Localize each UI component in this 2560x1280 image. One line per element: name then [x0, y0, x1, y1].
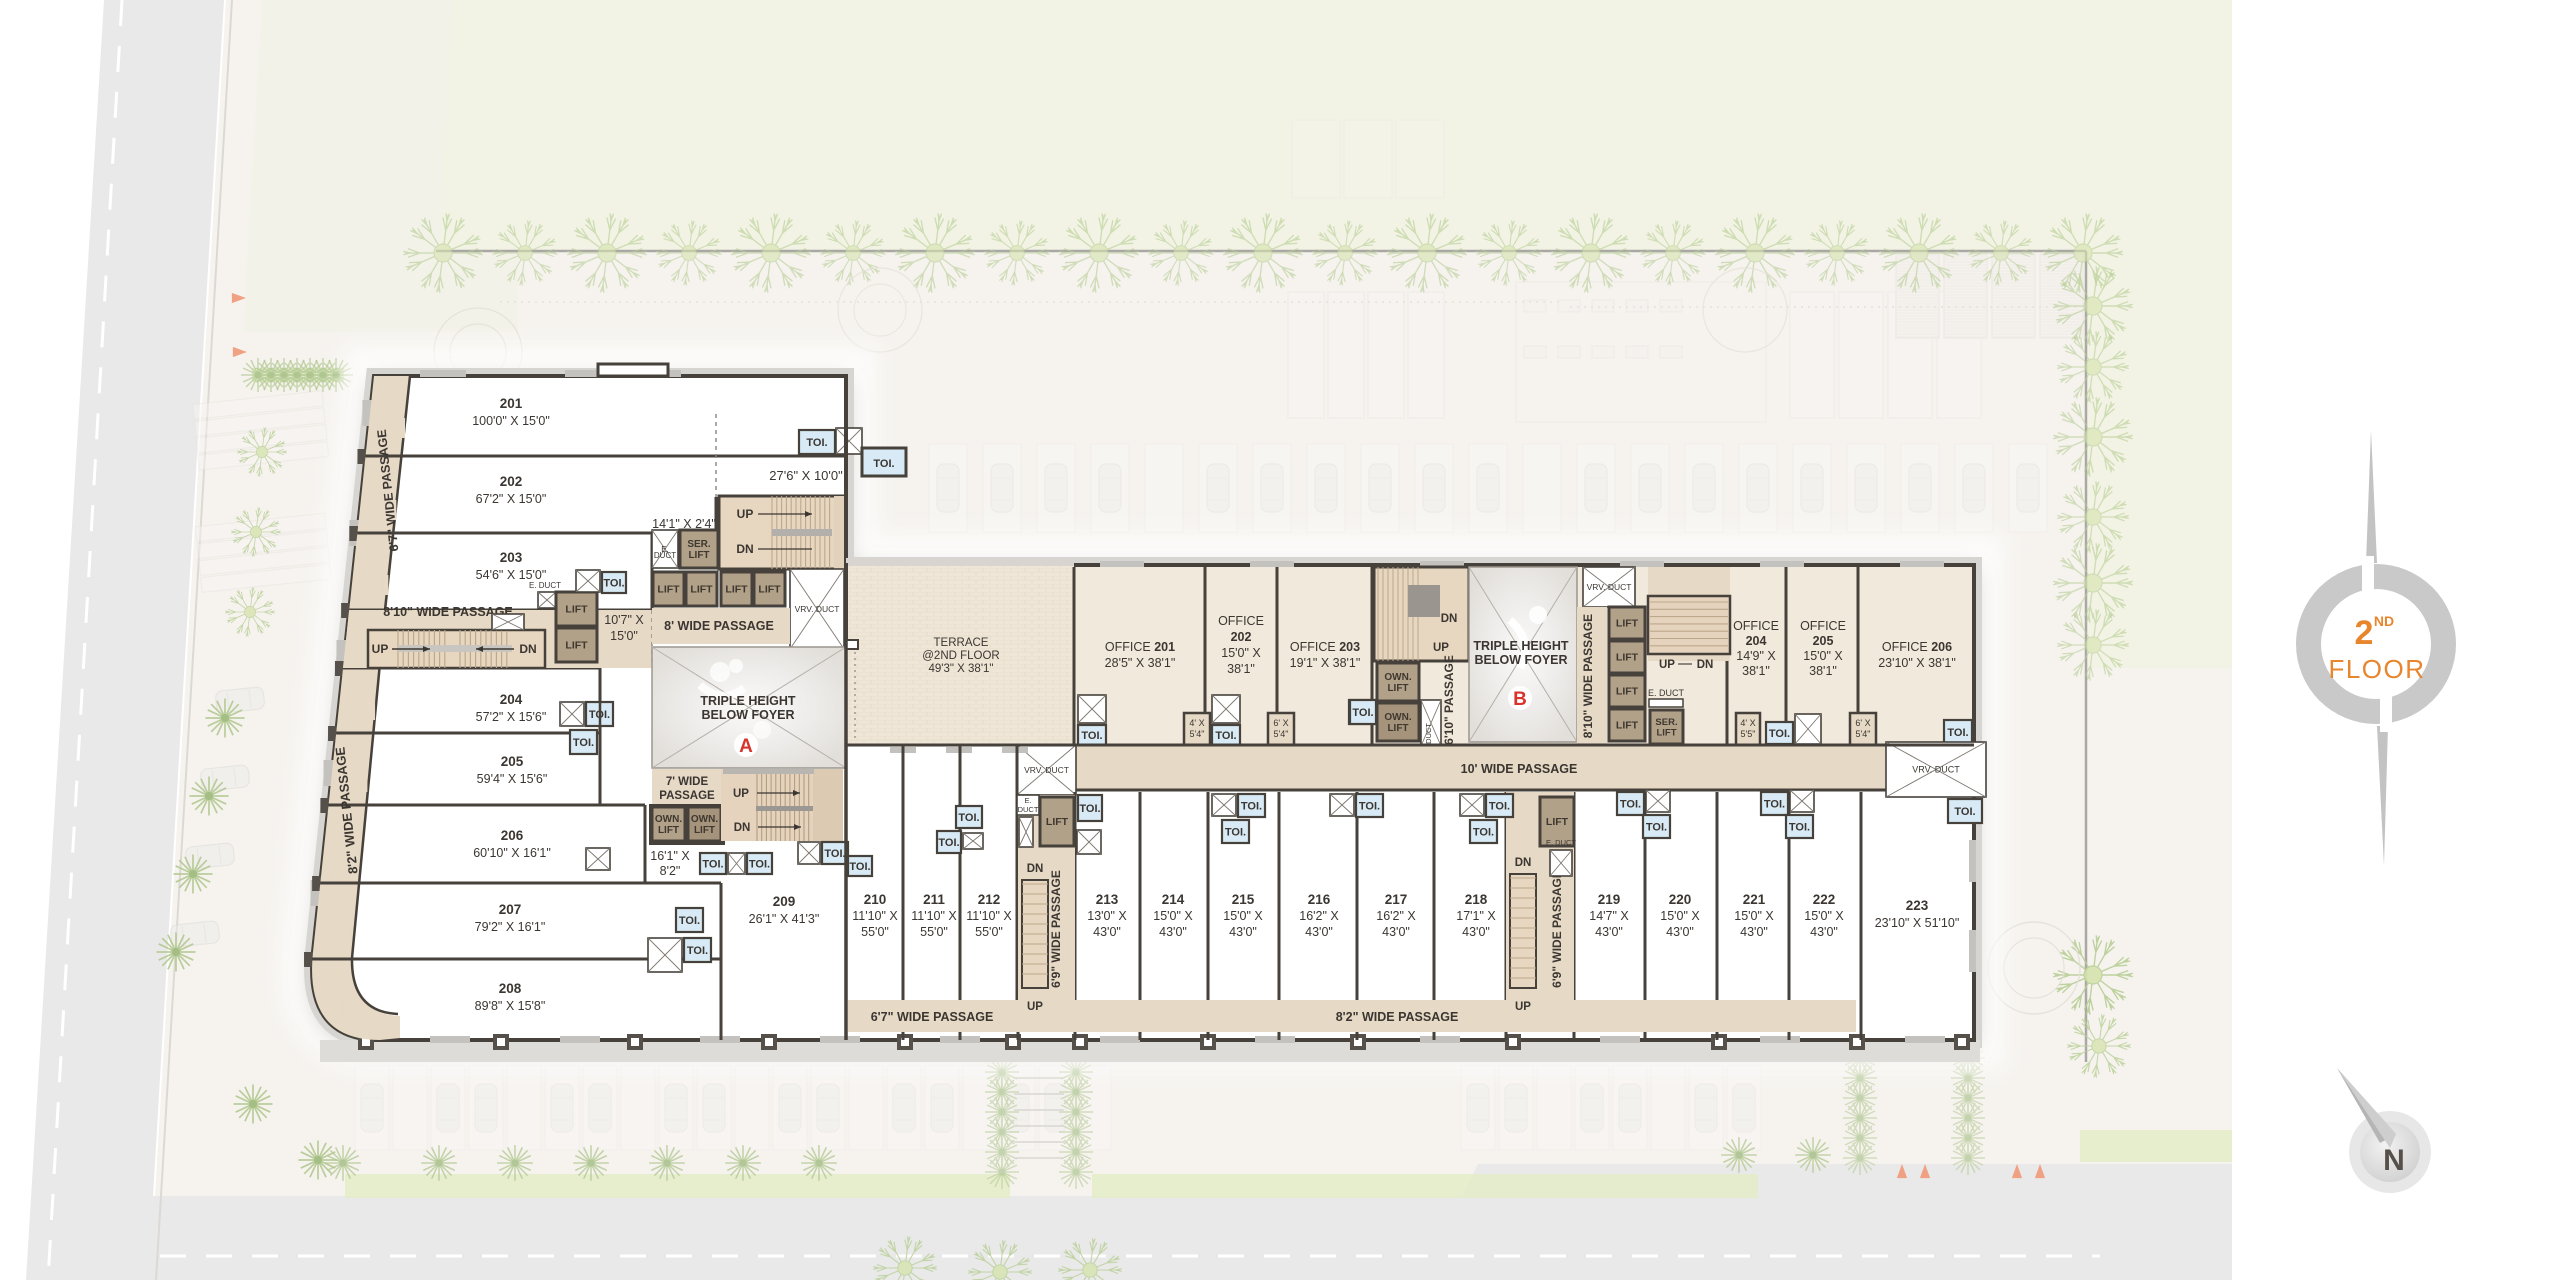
svg-text:221: 221	[1743, 892, 1766, 907]
svg-text:218: 218	[1465, 892, 1488, 907]
svg-text:OFFICE: OFFICE	[1800, 619, 1846, 633]
svg-text:SER.: SER.	[687, 539, 711, 550]
svg-text:55'0": 55'0"	[920, 925, 948, 939]
svg-text:14'7" X: 14'7" X	[1589, 909, 1629, 923]
svg-text:TOI.: TOI.	[1646, 821, 1667, 833]
svg-text:DUCT: DUCT	[654, 551, 676, 560]
svg-text:43'0": 43'0"	[1093, 925, 1121, 939]
svg-text:213: 213	[1096, 892, 1119, 907]
svg-text:E. DUCT: E. DUCT	[1648, 688, 1685, 698]
svg-text:100'0" X 15'0": 100'0" X 15'0"	[472, 414, 550, 428]
svg-text:LIFT: LIFT	[1387, 723, 1408, 734]
svg-text:220: 220	[1669, 892, 1692, 907]
svg-text:79'2" X 16'1": 79'2" X 16'1"	[475, 920, 546, 934]
svg-text:BELOW FOYER: BELOW FOYER	[1474, 653, 1567, 667]
svg-text:E.: E.	[1024, 796, 1031, 805]
svg-text:TOI.: TOI.	[849, 861, 870, 873]
svg-text:BELOW FOYER: BELOW FOYER	[701, 708, 794, 722]
svg-text:6'9" WIDE PASSAGE: 6'9" WIDE PASSAGE	[1049, 870, 1063, 988]
svg-text:TOI.: TOI.	[687, 945, 708, 957]
svg-text:210: 210	[864, 892, 887, 907]
svg-text:15'0": 15'0"	[610, 629, 638, 643]
svg-text:DN: DN	[519, 642, 536, 656]
svg-text:43'0": 43'0"	[1305, 925, 1333, 939]
svg-text:49'3" X 38'1": 49'3" X 38'1"	[929, 663, 994, 675]
svg-text:OFFICE 203: OFFICE 203	[1290, 640, 1360, 654]
svg-text:8'2": 8'2"	[660, 864, 681, 878]
svg-text:55'0": 55'0"	[861, 925, 889, 939]
svg-text:26'1" X 41'3": 26'1" X 41'3"	[749, 912, 820, 926]
svg-text:TOI.: TOI.	[749, 858, 770, 870]
svg-text:TOI.: TOI.	[1359, 800, 1380, 812]
svg-text:TOI.: TOI.	[958, 812, 979, 824]
svg-text:DN: DN	[1697, 659, 1714, 671]
svg-text:LIFT: LIFT	[690, 584, 713, 596]
svg-text:11'10" X: 11'10" X	[852, 909, 898, 923]
svg-text:2: 2	[2355, 614, 2374, 652]
svg-text:27'6" X 10'0": 27'6" X 10'0"	[769, 468, 843, 483]
svg-text:TOI.: TOI.	[1954, 806, 1975, 818]
svg-text:222: 222	[1813, 892, 1836, 907]
svg-text:TOI.: TOI.	[573, 737, 594, 749]
svg-text:TOI.: TOI.	[806, 437, 827, 449]
svg-text:LIFT: LIFT	[1387, 683, 1408, 694]
svg-text:TOI.: TOI.	[1620, 798, 1641, 810]
svg-text:B: B	[1513, 689, 1527, 710]
svg-text:204: 204	[1746, 634, 1767, 648]
svg-text:UP: UP	[733, 788, 749, 800]
svg-text:15'0" X: 15'0" X	[1153, 909, 1193, 923]
svg-text:ND: ND	[2374, 613, 2394, 629]
svg-text:TRIPLE HEIGHT: TRIPLE HEIGHT	[700, 694, 796, 708]
svg-text:43'0": 43'0"	[1462, 925, 1490, 939]
svg-text:215: 215	[1232, 892, 1255, 907]
svg-text:PASSAGE: PASSAGE	[659, 790, 715, 802]
svg-text:15'0" X: 15'0" X	[1221, 646, 1261, 660]
svg-text:UP: UP	[1659, 659, 1675, 671]
svg-text:15'0" X: 15'0" X	[1660, 909, 1700, 923]
svg-text:11'10" X: 11'10" X	[966, 909, 1012, 923]
svg-text:13'0" X: 13'0" X	[1087, 909, 1127, 923]
svg-text:TOI.: TOI.	[679, 915, 700, 927]
svg-text:205: 205	[1813, 634, 1834, 648]
svg-text:DN: DN	[734, 822, 751, 834]
svg-text:208: 208	[499, 981, 522, 996]
svg-text:43'0": 43'0"	[1810, 925, 1838, 939]
svg-text:UP: UP	[737, 507, 754, 521]
svg-text:TRIPLE HEIGHT: TRIPLE HEIGHT	[1473, 639, 1569, 653]
svg-text:LIFT: LIFT	[1046, 816, 1069, 828]
svg-text:DN: DN	[1027, 863, 1044, 875]
svg-text:6'9" WIDE PASSAGE: 6'9" WIDE PASSAGE	[1550, 870, 1564, 988]
svg-text:28'5" X 38'1": 28'5" X 38'1"	[1105, 656, 1176, 670]
svg-text:TOI.: TOI.	[1081, 730, 1102, 742]
svg-text:54'6" X 15'0": 54'6" X 15'0"	[476, 568, 547, 582]
svg-text:DN: DN	[1441, 613, 1458, 625]
svg-text:206: 206	[501, 828, 524, 843]
svg-text:11'10" X: 11'10" X	[911, 909, 957, 923]
svg-text:LIFT: LIFT	[688, 550, 709, 561]
svg-text:38'1": 38'1"	[1227, 662, 1255, 676]
svg-text:15'0" X: 15'0" X	[1804, 909, 1844, 923]
svg-text:214: 214	[1162, 892, 1185, 907]
svg-text:TOI.: TOI.	[1947, 727, 1968, 739]
svg-text:43'0": 43'0"	[1666, 925, 1694, 939]
svg-text:TOI.: TOI.	[1241, 800, 1262, 812]
svg-text:OWN.: OWN.	[655, 814, 682, 825]
svg-text:TOI.: TOI.	[1769, 728, 1790, 740]
svg-text:10'7" X: 10'7" X	[604, 613, 644, 627]
svg-text:LIFT: LIFT	[694, 825, 715, 836]
svg-text:UP: UP	[1515, 1001, 1531, 1013]
svg-text:43'0": 43'0"	[1159, 925, 1187, 939]
svg-text:8' WIDE PASSAGE: 8' WIDE PASSAGE	[664, 619, 774, 633]
svg-text:LIFT: LIFT	[1616, 720, 1639, 732]
svg-text:TOI.: TOI.	[1764, 798, 1785, 810]
svg-text:LIFT: LIFT	[758, 584, 781, 596]
svg-text:OWN.: OWN.	[1384, 712, 1411, 723]
svg-text:5'5": 5'5"	[1741, 729, 1756, 739]
svg-text:LIFT: LIFT	[657, 584, 680, 596]
svg-text:TOI.: TOI.	[1352, 707, 1373, 719]
svg-text:TOI.: TOI.	[603, 577, 624, 589]
svg-text:201: 201	[500, 396, 523, 411]
svg-text:6'7" WIDE PASSAGE: 6'7" WIDE PASSAGE	[871, 1010, 994, 1024]
svg-text:207: 207	[499, 902, 522, 917]
svg-text:17'1" X: 17'1" X	[1456, 909, 1496, 923]
svg-text:LIFT: LIFT	[1616, 618, 1639, 630]
svg-text:TOI.: TOI.	[1473, 826, 1494, 838]
svg-text:TOI.: TOI.	[1489, 800, 1510, 812]
svg-text:UP: UP	[1433, 642, 1449, 654]
svg-text:DUCT: DUCT	[1018, 805, 1039, 814]
svg-text:TOI.: TOI.	[873, 458, 894, 470]
svg-text:DN: DN	[736, 542, 753, 556]
svg-text:217: 217	[1385, 892, 1408, 907]
svg-text:E. DUCT: E. DUCT	[1546, 838, 1576, 847]
svg-text:5'4": 5'4"	[1856, 729, 1871, 739]
svg-text:216: 216	[1308, 892, 1331, 907]
svg-text:223: 223	[1906, 898, 1929, 913]
svg-text:202: 202	[1231, 630, 1252, 644]
svg-text:LIFT: LIFT	[1616, 652, 1639, 664]
svg-text:67'2" X 15'0": 67'2" X 15'0"	[476, 492, 547, 506]
svg-text:23'10" X 51'10": 23'10" X 51'10"	[1875, 916, 1960, 930]
svg-text:VRV. DUCT: VRV. DUCT	[795, 604, 840, 614]
svg-text:16'1" X: 16'1" X	[650, 849, 690, 863]
svg-text:LIFT: LIFT	[1656, 728, 1676, 739]
svg-text:43'0": 43'0"	[1229, 925, 1257, 939]
svg-text:4' X: 4' X	[1189, 718, 1204, 728]
svg-text:5'4": 5'4"	[1274, 729, 1289, 739]
svg-text:7' WIDE: 7' WIDE	[666, 776, 709, 788]
svg-text:15'0" X: 15'0" X	[1734, 909, 1774, 923]
svg-text:OFFICE: OFFICE	[1733, 619, 1779, 633]
svg-text:212: 212	[978, 892, 1001, 907]
svg-text:TOI.: TOI.	[824, 848, 845, 860]
svg-text:89'8" X 15'8": 89'8" X 15'8"	[475, 999, 546, 1013]
svg-text:TERRACE: TERRACE	[934, 637, 989, 649]
svg-text:211: 211	[923, 892, 945, 907]
svg-text:LIFT: LIFT	[565, 640, 588, 652]
svg-text:OFFICE: OFFICE	[1218, 614, 1264, 628]
svg-text:VRV. DUCT: VRV. DUCT	[1912, 765, 1960, 775]
svg-text:TOI.: TOI.	[1789, 821, 1810, 833]
svg-text:SER.: SER.	[1655, 717, 1677, 728]
svg-text:OFFICE 206: OFFICE 206	[1882, 640, 1952, 654]
svg-text:6'10" PASSAGE: 6'10" PASSAGE	[1442, 655, 1456, 745]
svg-text:219: 219	[1598, 892, 1621, 907]
svg-text:TOI.: TOI.	[1215, 730, 1236, 742]
svg-text:LIFT: LIFT	[1616, 686, 1639, 698]
svg-text:5'4": 5'4"	[1190, 729, 1205, 739]
svg-text:8'2" WIDE PASSAGE: 8'2" WIDE PASSAGE	[1336, 1010, 1459, 1024]
svg-text:23'10" X 38'1": 23'10" X 38'1"	[1878, 656, 1956, 670]
svg-text:15'0" X: 15'0" X	[1223, 909, 1263, 923]
svg-text:TOI.: TOI.	[1079, 803, 1100, 815]
svg-text:15'0" X: 15'0" X	[1803, 649, 1843, 663]
svg-text:38'1": 38'1"	[1742, 664, 1770, 678]
svg-text:TOI.: TOI.	[938, 837, 959, 849]
svg-text:TOI.: TOI.	[702, 858, 723, 870]
svg-text:FLOOR: FLOOR	[2328, 654, 2425, 684]
svg-text:A: A	[739, 736, 753, 757]
svg-text:10' WIDE PASSAGE: 10' WIDE PASSAGE	[1461, 762, 1578, 776]
svg-text:LIFT: LIFT	[658, 825, 679, 836]
svg-text:DN: DN	[1515, 857, 1532, 869]
svg-text:202: 202	[500, 474, 523, 489]
svg-text:6' X: 6' X	[1855, 718, 1870, 728]
svg-text:43'0": 43'0"	[1382, 925, 1410, 939]
svg-text:OWN.: OWN.	[1384, 672, 1411, 683]
svg-text:OFFICE 201: OFFICE 201	[1105, 640, 1175, 654]
svg-text:UP: UP	[1027, 1001, 1043, 1013]
svg-text:4' X: 4' X	[1740, 718, 1755, 728]
svg-text:14'9" X: 14'9" X	[1736, 649, 1776, 663]
svg-text:LIFT: LIFT	[565, 604, 588, 616]
svg-text:OWN.: OWN.	[691, 814, 718, 825]
svg-text:8'10" WIDE PASSAGE: 8'10" WIDE PASSAGE	[1581, 614, 1595, 738]
svg-text:LIFT: LIFT	[725, 584, 748, 596]
svg-text:6' X: 6' X	[1273, 718, 1288, 728]
svg-text:57'2" X 15'6": 57'2" X 15'6"	[476, 710, 547, 724]
svg-text:N: N	[2383, 1144, 2405, 1177]
svg-text:205: 205	[501, 754, 524, 769]
svg-text:@2ND FLOOR: @2ND FLOOR	[922, 650, 1000, 662]
svg-text:204: 204	[500, 692, 523, 707]
svg-text:60'10" X 16'1": 60'10" X 16'1"	[473, 846, 551, 860]
svg-text:43'0": 43'0"	[1595, 925, 1623, 939]
svg-text:LIFT: LIFT	[1546, 816, 1569, 828]
svg-text:209: 209	[773, 894, 796, 909]
svg-text:16'2" X: 16'2" X	[1299, 909, 1339, 923]
svg-text:UP: UP	[372, 642, 389, 656]
svg-text:38'1": 38'1"	[1809, 664, 1837, 678]
svg-text:E. DUCT: E. DUCT	[529, 581, 561, 590]
svg-text:59'4" X 15'6": 59'4" X 15'6"	[477, 772, 548, 786]
svg-text:VRV. DUCT: VRV. DUCT	[1024, 765, 1069, 775]
svg-text:16'2" X: 16'2" X	[1376, 909, 1416, 923]
svg-text:43'0": 43'0"	[1740, 925, 1768, 939]
svg-text:VRV. DUCT: VRV. DUCT	[1587, 582, 1632, 592]
svg-text:203: 203	[500, 550, 523, 565]
svg-text:19'1" X 38'1": 19'1" X 38'1"	[1290, 656, 1361, 670]
svg-text:TOI.: TOI.	[1225, 826, 1246, 838]
svg-text:55'0": 55'0"	[975, 925, 1003, 939]
